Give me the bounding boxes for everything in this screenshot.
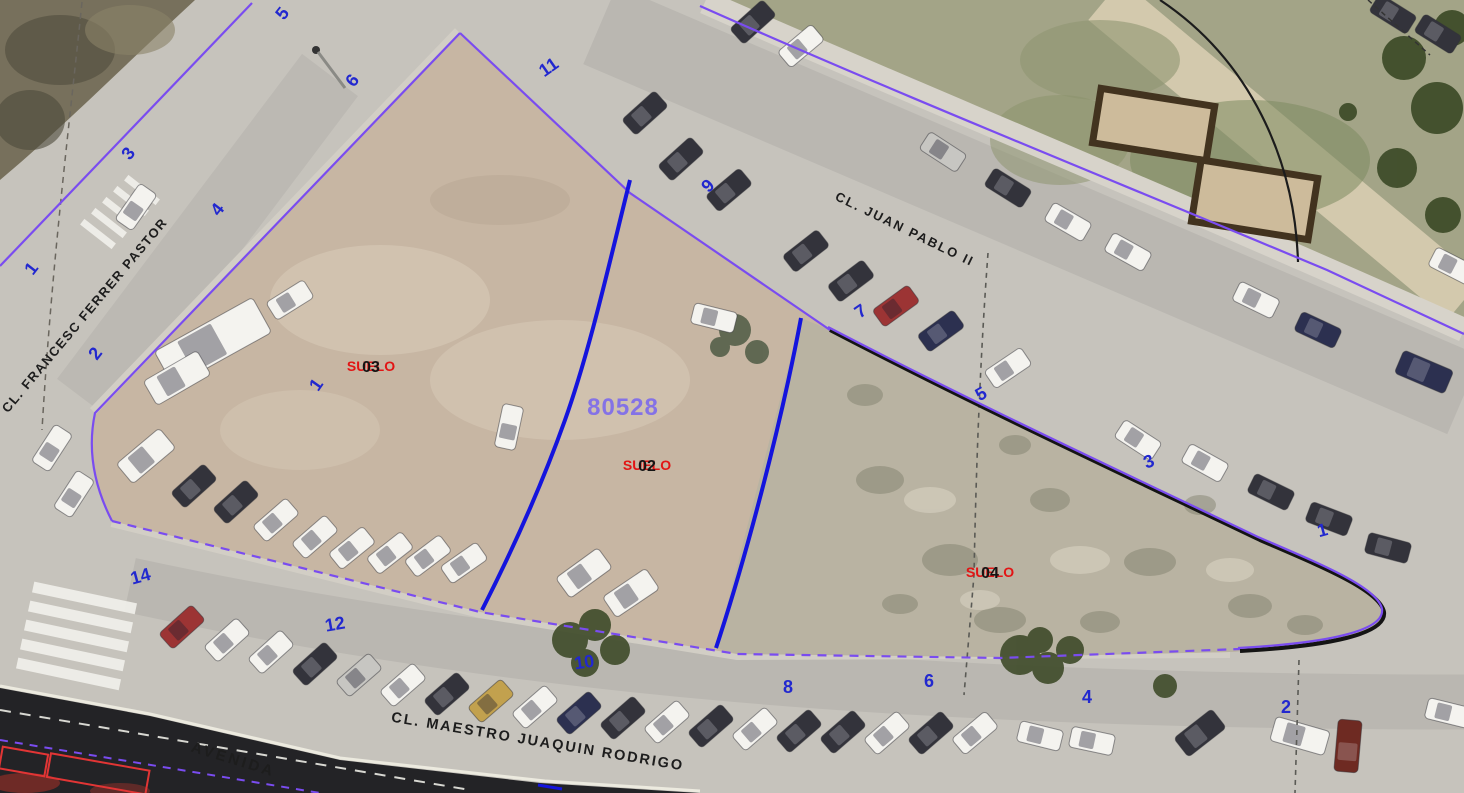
subparcel-code: 03 (362, 359, 380, 376)
dirt-patch (220, 390, 380, 470)
house-number-label: 6 (924, 671, 934, 691)
house-number-label: 2 (1281, 697, 1291, 717)
house-number-label: 12 (323, 613, 346, 636)
house-number-label: 10 (573, 651, 596, 674)
dirt-patch (430, 175, 570, 225)
cadastral-map[interactable]: 80528 CL. JUAN PABLO IICL. FRANCESC FERR… (0, 0, 1464, 793)
scrub-texture (85, 5, 175, 55)
subparcel-code: 02 (638, 458, 656, 475)
house-number-label: 8 (783, 677, 793, 697)
aerial-photo-layer (0, 0, 1464, 793)
parcel-number: 80528 (587, 394, 659, 421)
subparcel-code: 04 (981, 565, 999, 582)
house-number-label: 4 (1082, 687, 1092, 707)
vehicle (1334, 719, 1362, 773)
map-viewport[interactable]: 80528 CL. JUAN PABLO IICL. FRANCESC FERR… (0, 0, 1464, 793)
dirt-patch (430, 320, 690, 440)
